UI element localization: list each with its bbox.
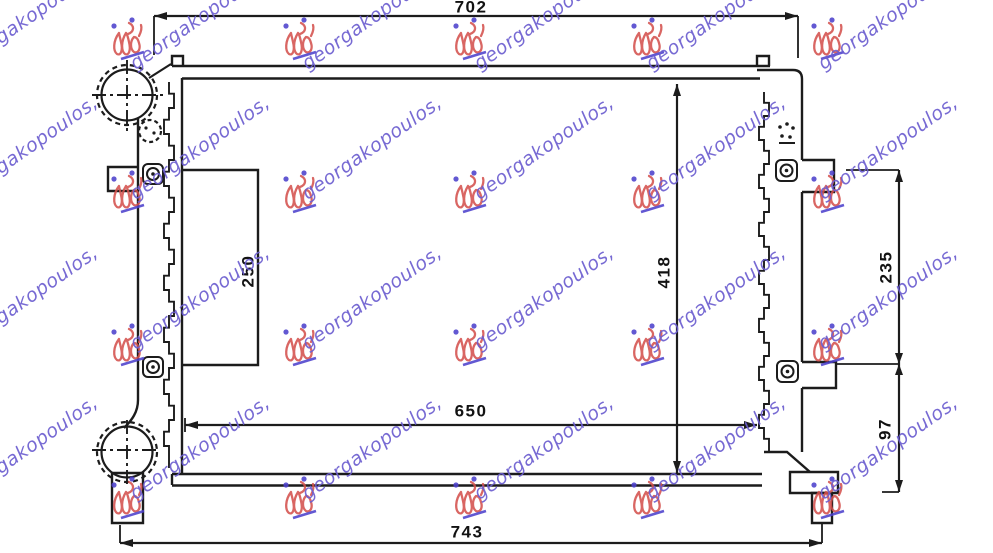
- dimension-label-702: 702: [455, 0, 488, 17]
- right-foot: [790, 472, 838, 493]
- right-upper-bracket: [802, 160, 834, 192]
- dimension-label-743: 743: [451, 524, 484, 543]
- top-header: [172, 56, 770, 79]
- dimension-label-97: 97: [877, 418, 896, 440]
- core-right-crimp-edge: [759, 92, 769, 452]
- top-inlet-port: [92, 60, 171, 142]
- right-lower-bracket: [802, 362, 836, 388]
- left-mount-bracket: [108, 167, 138, 191]
- dimension-line-702: [154, 12, 798, 58]
- radiator-outline-drawing: [0, 0, 993, 553]
- bottom-outlet-port: [92, 420, 160, 485]
- radiator-technical-drawing: 702 743 650 418 250 235 97 georgakopoulo…: [0, 0, 993, 553]
- dimension-lines: [120, 12, 903, 547]
- core-left-crimp-edge: [164, 82, 174, 468]
- dimension-label-250: 250: [240, 255, 259, 288]
- right-lower-screw: [777, 361, 798, 382]
- dimension-label-235: 235: [878, 251, 897, 284]
- left-tank: [92, 60, 171, 523]
- dimension-label-650: 650: [455, 403, 488, 422]
- right-upper-screw: [776, 160, 797, 181]
- dimension-line-235-97: [836, 170, 903, 492]
- left-upper-screw: [143, 164, 163, 184]
- right-upper-holes: [778, 122, 795, 139]
- dimension-label-418: 418: [656, 256, 675, 289]
- left-lower-screw: [143, 357, 163, 377]
